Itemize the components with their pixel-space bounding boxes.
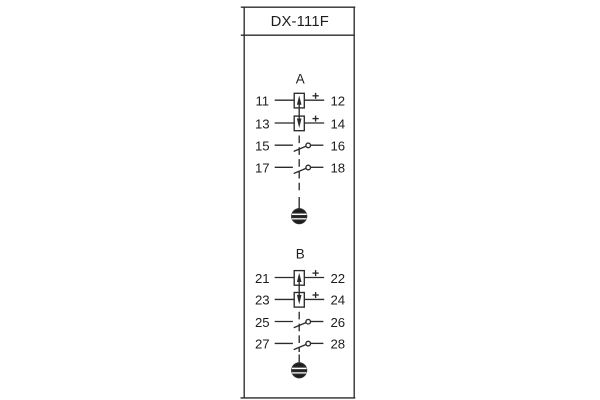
- svg-text:18: 18: [330, 161, 345, 176]
- svg-text:14: 14: [330, 116, 345, 131]
- svg-text:24: 24: [330, 293, 345, 308]
- svg-text:28: 28: [330, 337, 345, 352]
- svg-text:DX-111F: DX-111F: [271, 14, 329, 30]
- svg-text:17: 17: [255, 161, 270, 176]
- svg-text:27: 27: [255, 337, 270, 352]
- svg-text:16: 16: [330, 139, 345, 154]
- svg-text:A: A: [296, 72, 305, 87]
- svg-text:12: 12: [330, 94, 345, 109]
- svg-text:25: 25: [255, 315, 270, 330]
- svg-text:21: 21: [255, 271, 270, 286]
- svg-text:26: 26: [330, 315, 345, 330]
- svg-text:23: 23: [255, 293, 270, 308]
- svg-text:13: 13: [255, 116, 270, 131]
- svg-text:22: 22: [330, 271, 345, 286]
- svg-text:11: 11: [255, 94, 269, 109]
- svg-text:B: B: [296, 247, 305, 262]
- svg-text:15: 15: [255, 139, 270, 154]
